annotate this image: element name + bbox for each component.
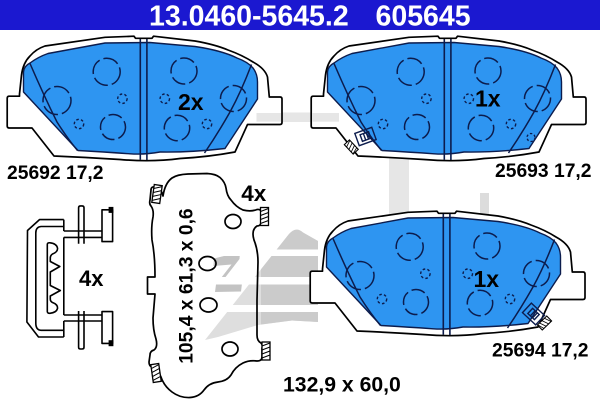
- svg-text:132,9 x 60,0: 132,9 x 60,0: [283, 374, 401, 397]
- svg-text:1x: 1x: [475, 86, 501, 112]
- svg-text:25692 17,2: 25692 17,2: [7, 163, 104, 184]
- svg-text:605645: 605645: [376, 1, 471, 33]
- svg-text:4x: 4x: [241, 181, 267, 206]
- svg-text:4x: 4x: [79, 266, 104, 291]
- svg-text:25693 17,2: 25693 17,2: [495, 161, 592, 182]
- svg-text:13.0460-5645.2: 13.0460-5645.2: [149, 1, 349, 33]
- svg-text:105,4 x 61,3 x 0,6: 105,4 x 61,3 x 0,6: [176, 208, 197, 364]
- svg-text:2x: 2x: [178, 89, 204, 115]
- svg-text:1x: 1x: [474, 266, 500, 292]
- svg-text:25694 17,2: 25694 17,2: [492, 341, 589, 362]
